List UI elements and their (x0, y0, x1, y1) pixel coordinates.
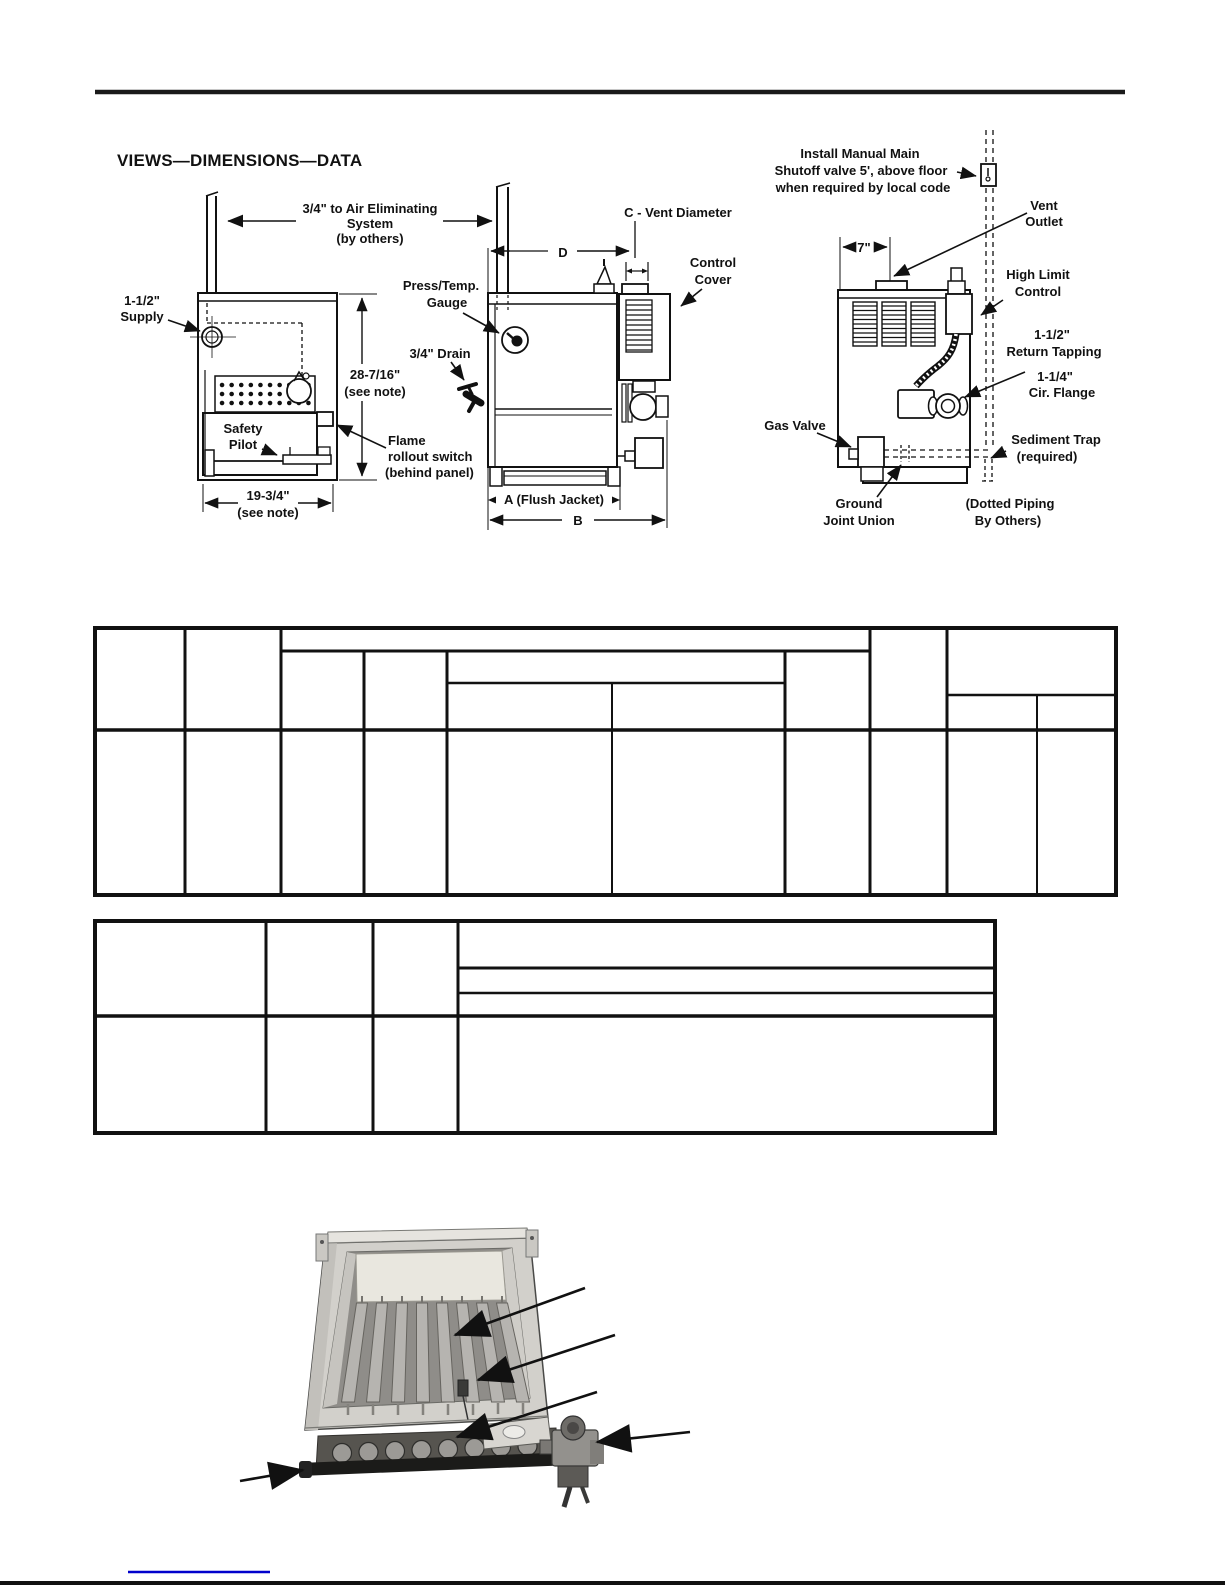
relief-valve (597, 267, 611, 284)
cir-flange-arrow (965, 372, 1025, 397)
shutoff-label-2: Shutoff valve 5', above floor (775, 163, 948, 178)
side-boiler-outline (488, 293, 617, 467)
drain-arrow (451, 362, 464, 380)
high-limit-label-2: Control (1015, 284, 1061, 299)
control-cover-label: Control (690, 255, 736, 270)
burner-photo (240, 1228, 690, 1507)
air-eliminating-label-3: (by others) (336, 231, 403, 246)
rating-table (95, 921, 995, 1133)
safety-pilot-label: Safety (223, 421, 263, 436)
cir-flange-label-2: Cir. Flange (1029, 385, 1095, 400)
return-tapping-label: 1-1/2" (1034, 327, 1070, 342)
back-panel (356, 1251, 506, 1302)
control-cover-arrow (681, 289, 702, 306)
rollout-label-2: rollout switch (388, 449, 473, 464)
dimension-table (95, 628, 1116, 895)
manifold-arrow (240, 1470, 303, 1481)
shutoff-label-3: when required by local code (775, 180, 951, 195)
vent-outlet-label: Vent (1030, 198, 1058, 213)
dotted-piping-label: (Dotted Piping (966, 496, 1055, 511)
dotted-piping-label-2: By Others) (975, 513, 1041, 528)
shutoff-label: Install Manual Main (800, 146, 919, 161)
circulator-flange (936, 394, 960, 418)
gas-valve (858, 437, 884, 467)
valve-arrow (597, 1432, 690, 1442)
air-eliminating-label: 3/4" to Air Eliminating (303, 201, 438, 216)
side-circulator (630, 394, 656, 420)
high-limit-arrow (981, 300, 1003, 315)
width-dim-note: (see note) (237, 505, 298, 520)
manual-page: VIEWS—DIMENSIONS—DATA (0, 0, 1225, 1585)
drain-valve (459, 384, 481, 411)
dim-d-label: D (558, 245, 567, 260)
supply-arrow (168, 320, 200, 331)
rollout-label-3: (behind panel) (385, 465, 474, 480)
return-tapping-label-2: Return Tapping (1006, 344, 1101, 359)
dim-7-label: 7" (857, 240, 870, 255)
width-dim-label: 19-3/4" (246, 488, 289, 503)
high-limit-control (946, 294, 972, 334)
cir-flange-label: 1-1/4" (1037, 369, 1073, 384)
height-dim-label: 28-7/16" (350, 367, 400, 382)
junction-box (635, 438, 663, 468)
drain-label: 3/4" Drain (409, 346, 470, 361)
ground-union-label: Ground (836, 496, 883, 511)
side-view-diagram (451, 183, 702, 530)
control-cover-label-2: Cover (695, 272, 732, 287)
shutoff-arrow (957, 172, 976, 176)
pilot-tube (283, 455, 331, 464)
pilot-igniter (458, 1380, 468, 1396)
page-canvas: VIEWS—DIMENSIONS—DATA (0, 0, 1225, 1585)
sediment-arrow (991, 451, 1006, 458)
vent-diameter-label: C - Vent Diameter (624, 205, 732, 220)
dim-a-label: A (Flush Jacket) (504, 492, 604, 507)
safety-pilot-arrow (262, 449, 277, 455)
supply-label-2: Supply (120, 309, 164, 324)
height-dim-note: (see note) (344, 384, 405, 399)
high-limit-label: High Limit (1006, 267, 1070, 282)
safety-pilot-label-2: Pilot (229, 437, 258, 452)
rollout-label: Flame (388, 433, 426, 448)
gas-valve-arrow (817, 433, 851, 447)
supply-label: 1-1/2" (124, 293, 160, 308)
sediment-label: Sediment Trap (1011, 432, 1101, 447)
gas-valve-label: Gas Valve (764, 418, 825, 433)
press-temp-label-2: Gauge (427, 295, 467, 310)
gauge-arrow (463, 313, 499, 333)
air-eliminating-label-2: System (347, 216, 393, 231)
page-title: VIEWS—DIMENSIONS—DATA (117, 151, 362, 170)
rollout-switch (317, 412, 333, 426)
press-temp-label: Press/Temp. (403, 278, 479, 293)
dim-b-label: B (573, 513, 582, 528)
sediment-label-2: (required) (1017, 449, 1078, 464)
vent-outlet-label-2: Outlet (1025, 214, 1063, 229)
ground-union-label-2: Joint Union (823, 513, 895, 528)
control-cover (619, 294, 670, 380)
